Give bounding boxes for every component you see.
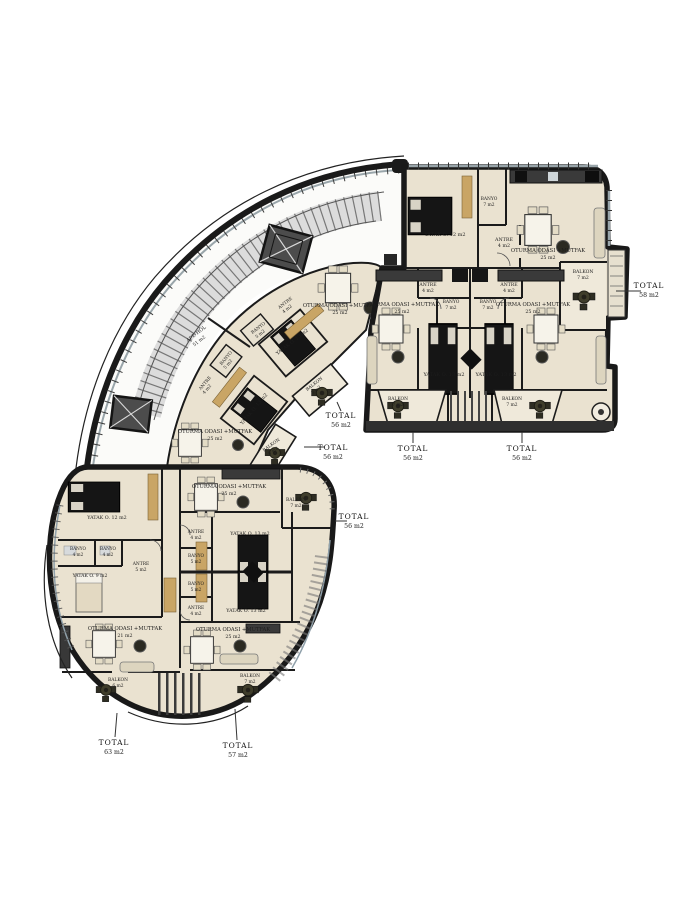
floor-plan-drawing: YATAK O. 12 m2BANYO7 m2ANTRE4 m2OTURMA O… [0, 0, 675, 900]
dl-oturma-area: 21 m2 [117, 633, 132, 639]
c2-oturma-label: OTURMA ODASI +MUTFAK [178, 429, 252, 435]
fridge [452, 269, 468, 282]
armchair [237, 496, 249, 508]
balcony-mid-right [494, 390, 562, 424]
tr-oturma-area: 25 m2 [540, 255, 555, 261]
dimension-leader [235, 709, 237, 740]
mra-balkon-area: 7 m2 [392, 403, 403, 408]
d2b-antre-area: 4 m2 [190, 612, 201, 617]
dl-yatak9-label: YATAK O. 9 m2 [72, 573, 108, 579]
dl-balkon-area: 6 m2 [112, 684, 123, 689]
kitchen-counter [498, 270, 564, 281]
dl-total-label: TOTAL [99, 738, 130, 747]
armchair [536, 351, 548, 363]
mra-oturma-area: 25 m2 [394, 309, 409, 315]
floor-plan: YATAK O. 12 m2BANYO7 m2ANTRE4 m2OTURMA O… [0, 0, 675, 900]
d2b-total-label: TOTAL [223, 741, 254, 750]
mrb-antre-area: 4 m2 [503, 288, 515, 294]
mra-balkon-label: BALKON [388, 397, 408, 402]
armchair [233, 440, 244, 451]
c1-total-label: TOTAL [326, 411, 357, 420]
d2a-yatak-label: YATAK O. 13 m2 [229, 531, 269, 537]
tr-oturma-label: OTURMA ODASI +MUTFAK [511, 248, 585, 254]
tr-balkon-area: 7 m2 [577, 275, 589, 281]
d2a-balkon-area: 7 m2 [290, 504, 301, 509]
tr-antre-label: ANTRE [494, 237, 513, 243]
d2a-antre-label: ANTRE [187, 530, 204, 535]
dl-antre-area: 5 m2 [135, 568, 146, 573]
elevator-shaft-lower [110, 396, 152, 432]
tr-antre-area: 4 m2 [498, 243, 510, 249]
d2a-banyo-area: 5 m2 [191, 559, 202, 564]
mrb-oturma-area: 25 m2 [525, 309, 540, 315]
c2-total-label: TOTAL [318, 443, 349, 452]
dl-banyo2-area: 4 m2 [103, 552, 114, 557]
tr-balkon-label: BALKON [573, 269, 594, 275]
tr-total-area: 58 m2 [639, 292, 659, 299]
d2a-total-area: 56 m2 [344, 523, 364, 530]
balcony-railing [608, 250, 625, 317]
duct-block [384, 254, 397, 265]
d2b-balkon-label: BALKON [240, 674, 260, 679]
fridge [472, 269, 488, 282]
c1-oturma-label: OTURMA ODASI +MUTFAK [303, 303, 377, 309]
kitchen-counter [222, 469, 280, 479]
wardrobe [462, 176, 472, 218]
sofa [594, 208, 605, 258]
d2a-oturma-label: OTURMA ODASI +MUTFAK [192, 484, 266, 490]
d2b-oturma-area: 25 m2 [225, 634, 240, 640]
wardrobe [164, 578, 176, 612]
d2b-antre-label: ANTRE [187, 606, 204, 611]
d2b-banyo-label: BANYO [188, 581, 205, 586]
sofa [220, 654, 258, 664]
fridge [585, 171, 599, 182]
sofa [120, 662, 154, 672]
sofa [596, 336, 606, 384]
d2b-balkon-area: 7 m2 [244, 680, 255, 685]
dl-yatak12-label: YATAK O. 12 m2 [86, 515, 126, 521]
d2a-antre-area: 4 m2 [190, 536, 201, 541]
kitchen-counter [376, 270, 442, 281]
dimension-leader [337, 402, 341, 411]
mrb-balkon-area: 7 m2 [506, 403, 517, 408]
mrb-oturma-label: OTURMA ODASI +MUTFAK [496, 302, 570, 308]
dl-total-area: 63 m2 [104, 749, 124, 756]
mrb-balkon-label: BALKON [502, 397, 522, 402]
mra-antre-label: ANTRE [418, 282, 436, 288]
d2b-oturma-label: OTURMA ODASI +MUTFAK [196, 627, 270, 633]
mrb-antre-label: ANTRE [499, 282, 517, 288]
tr-yatak-label: YATAK O. 12 m2 [423, 232, 465, 238]
tr-total-label: TOTAL [634, 281, 665, 290]
mra-total-area: 56 m2 [403, 455, 423, 462]
d2a-banyo-label: BANYO [188, 553, 205, 558]
dl-banyo1-area: 4 m2 [73, 552, 84, 557]
mra-total-label: TOTAL [398, 444, 429, 453]
tr-banyo-area: 7 m2 [483, 203, 494, 208]
right-wing [366, 166, 627, 431]
stove [515, 171, 527, 182]
c2-total-area: 56 m2 [323, 454, 343, 461]
dl-balkon-label: BALKON [108, 678, 128, 683]
dl-antre-label: ANTRE [132, 562, 149, 567]
mra-yatak-label: YATAK O. 13 m2 [422, 372, 464, 378]
dl-oturma-label: OTURMA ODASI +MUTFAK [88, 626, 162, 632]
deck-band [366, 421, 614, 431]
armchair [134, 640, 146, 652]
dimension-leader [115, 713, 117, 737]
mrb-total-area: 56 m2 [512, 455, 532, 462]
d2b-banyo-area: 5 m2 [191, 587, 202, 592]
d2a-total-label: TOTAL [339, 512, 370, 521]
mrb-banyo-area: 7 m2 [482, 306, 493, 311]
d2b-total-area: 57 m2 [228, 752, 248, 759]
dl-banyo2-label: BANYO [100, 546, 117, 551]
mrb-banyo-label: BANYO [480, 300, 497, 305]
wardrobe [148, 474, 158, 520]
sofa [367, 336, 377, 384]
sink [548, 172, 558, 181]
mra-banyo-label: BANYO [443, 300, 460, 305]
dl-banyo1-label: BANYO [70, 546, 87, 551]
c1-total-area: 56 m2 [331, 422, 351, 429]
c2-oturma-area: 25 m2 [207, 436, 222, 442]
armchair [234, 640, 246, 652]
mra-antre-area: 4 m2 [422, 288, 434, 294]
mrb-yatak-label: YATAK O. 13 m2 [474, 372, 516, 378]
tr-banyo-label: BANYO [481, 197, 498, 202]
mra-banyo-area: 7 m2 [445, 306, 456, 311]
c1-oturma-area: 25 m2 [332, 310, 347, 316]
mrb-total-label: TOTAL [507, 444, 538, 453]
d2a-oturma-area: 25 m2 [221, 491, 236, 497]
d2b-yatak-label: YATAK O. 13 m2 [225, 608, 265, 614]
armchair [392, 351, 404, 363]
d2a-balkon-label: BALKON [286, 498, 306, 503]
